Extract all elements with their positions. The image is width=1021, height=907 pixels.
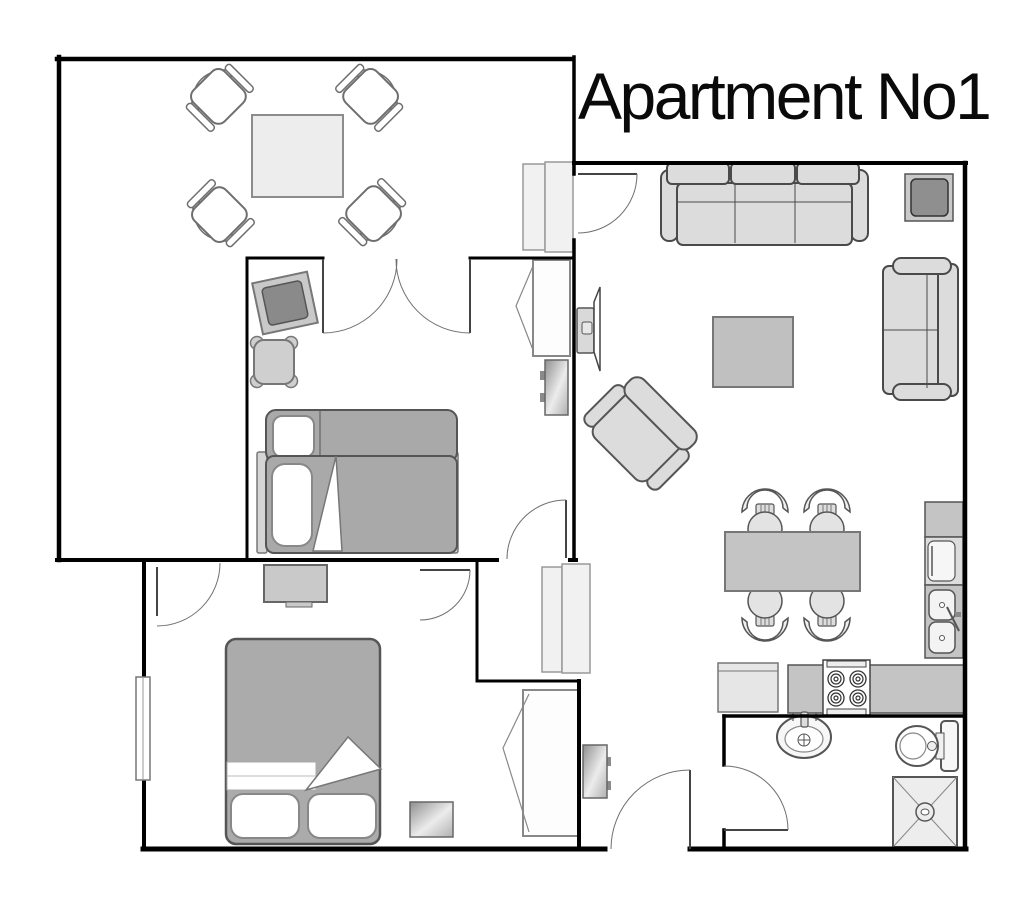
wardrobe — [516, 260, 570, 356]
door-bedroom-bottom-2 — [420, 570, 470, 620]
door-living — [578, 174, 637, 233]
dining-room — [181, 59, 573, 252]
sofa-bed — [257, 410, 458, 553]
bathroom — [777, 712, 958, 847]
ottoman — [251, 337, 298, 388]
shower — [893, 777, 957, 847]
double-sink — [925, 585, 963, 658]
dresser — [264, 565, 327, 607]
sofa-3-seat — [661, 163, 868, 245]
wardrobe — [503, 690, 578, 836]
armchair-bottom-left — [182, 177, 257, 252]
tilted-tv — [252, 272, 318, 335]
window — [136, 677, 150, 780]
armchair — [579, 368, 706, 495]
closet-by-door — [523, 162, 573, 252]
chair-4 — [804, 584, 850, 641]
pillow — [308, 794, 376, 838]
closet-1 — [542, 567, 562, 672]
dining-table — [725, 532, 860, 591]
loveseat — [883, 258, 958, 400]
double-door — [323, 259, 470, 333]
wall-screen — [583, 745, 611, 798]
armchair-bottom-right — [336, 176, 411, 251]
media-stand — [410, 802, 453, 837]
washbasin — [777, 712, 831, 758]
floor-plan: Apartment No1 — [0, 0, 1021, 907]
stove — [823, 660, 870, 716]
armchair-top-left — [181, 59, 256, 134]
counter — [788, 665, 965, 713]
living-room — [577, 163, 958, 641]
dishwasher — [925, 537, 963, 585]
door-bedroom-middle — [507, 500, 566, 559]
chair-3 — [742, 584, 788, 641]
floor-plan-svg — [0, 0, 1021, 907]
armchair-top-right — [333, 59, 408, 134]
refrigerator — [718, 663, 778, 712]
upper-cabinet — [925, 502, 963, 537]
door-bedroom-bottom-1 — [157, 563, 220, 626]
coffee-table — [713, 317, 793, 387]
wall-tv — [540, 360, 568, 415]
bedroom-middle — [251, 260, 571, 553]
corner-tv — [905, 174, 953, 221]
pillow — [231, 794, 299, 838]
bedroom-bottom — [226, 565, 578, 844]
entrance-door — [611, 770, 690, 849]
wall-tv — [577, 287, 600, 371]
double-bed — [226, 639, 381, 844]
dining-table — [252, 115, 343, 197]
door-bathroom — [724, 766, 788, 830]
closet-2 — [562, 564, 590, 673]
toilet — [896, 721, 958, 771]
